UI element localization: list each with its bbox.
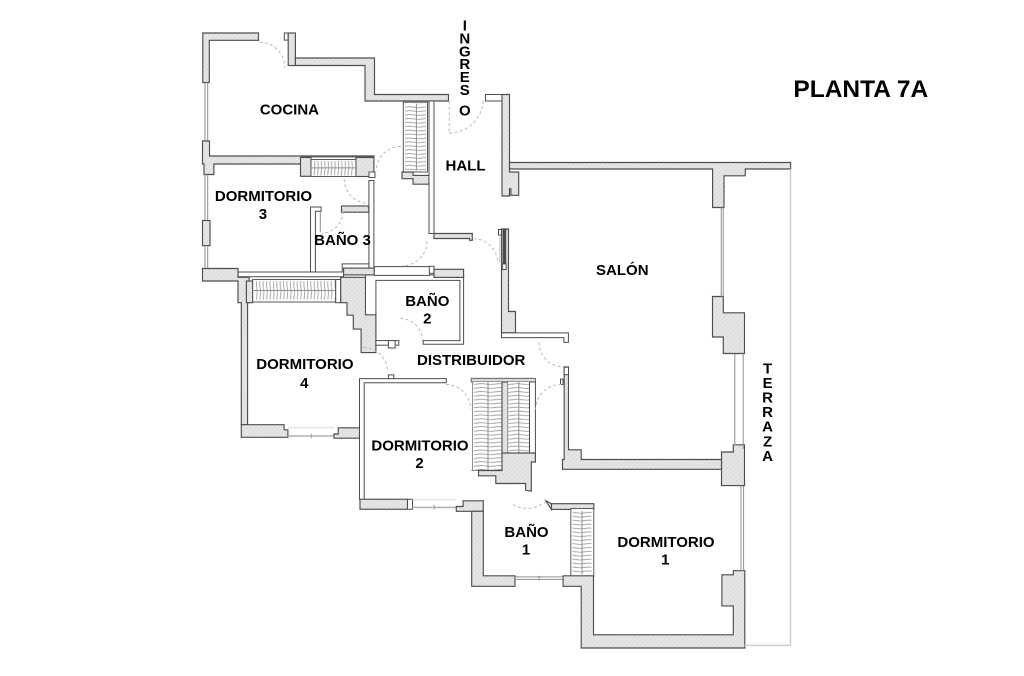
svg-text:COCINA: COCINA	[260, 102, 319, 119]
svg-text:DISTRIBUIDOR: DISTRIBUIDOR	[417, 352, 526, 369]
svg-text:S: S	[460, 82, 470, 99]
svg-text:BAÑO: BAÑO	[405, 292, 449, 310]
svg-text:HALL: HALL	[446, 158, 486, 175]
svg-text:2: 2	[423, 311, 431, 328]
svg-text:PLANTA 7A: PLANTA 7A	[793, 76, 928, 103]
svg-text:DORMITORIO: DORMITORIO	[256, 356, 354, 373]
svg-text:SALÓN: SALÓN	[596, 261, 649, 279]
svg-text:DORMITORIO: DORMITORIO	[215, 188, 313, 205]
svg-text:1: 1	[661, 552, 669, 569]
svg-text:BAÑO: BAÑO	[504, 523, 548, 541]
svg-text:4: 4	[300, 375, 309, 392]
svg-text:1: 1	[522, 542, 530, 559]
svg-text:A: A	[762, 448, 773, 465]
svg-text:O: O	[459, 103, 471, 120]
svg-text:3: 3	[259, 206, 267, 223]
svg-text:DORMITORIO: DORMITORIO	[617, 534, 715, 551]
svg-text:BAÑO 3: BAÑO 3	[314, 231, 371, 249]
svg-text:2: 2	[415, 455, 423, 472]
svg-text:DORMITORIO: DORMITORIO	[371, 438, 469, 455]
